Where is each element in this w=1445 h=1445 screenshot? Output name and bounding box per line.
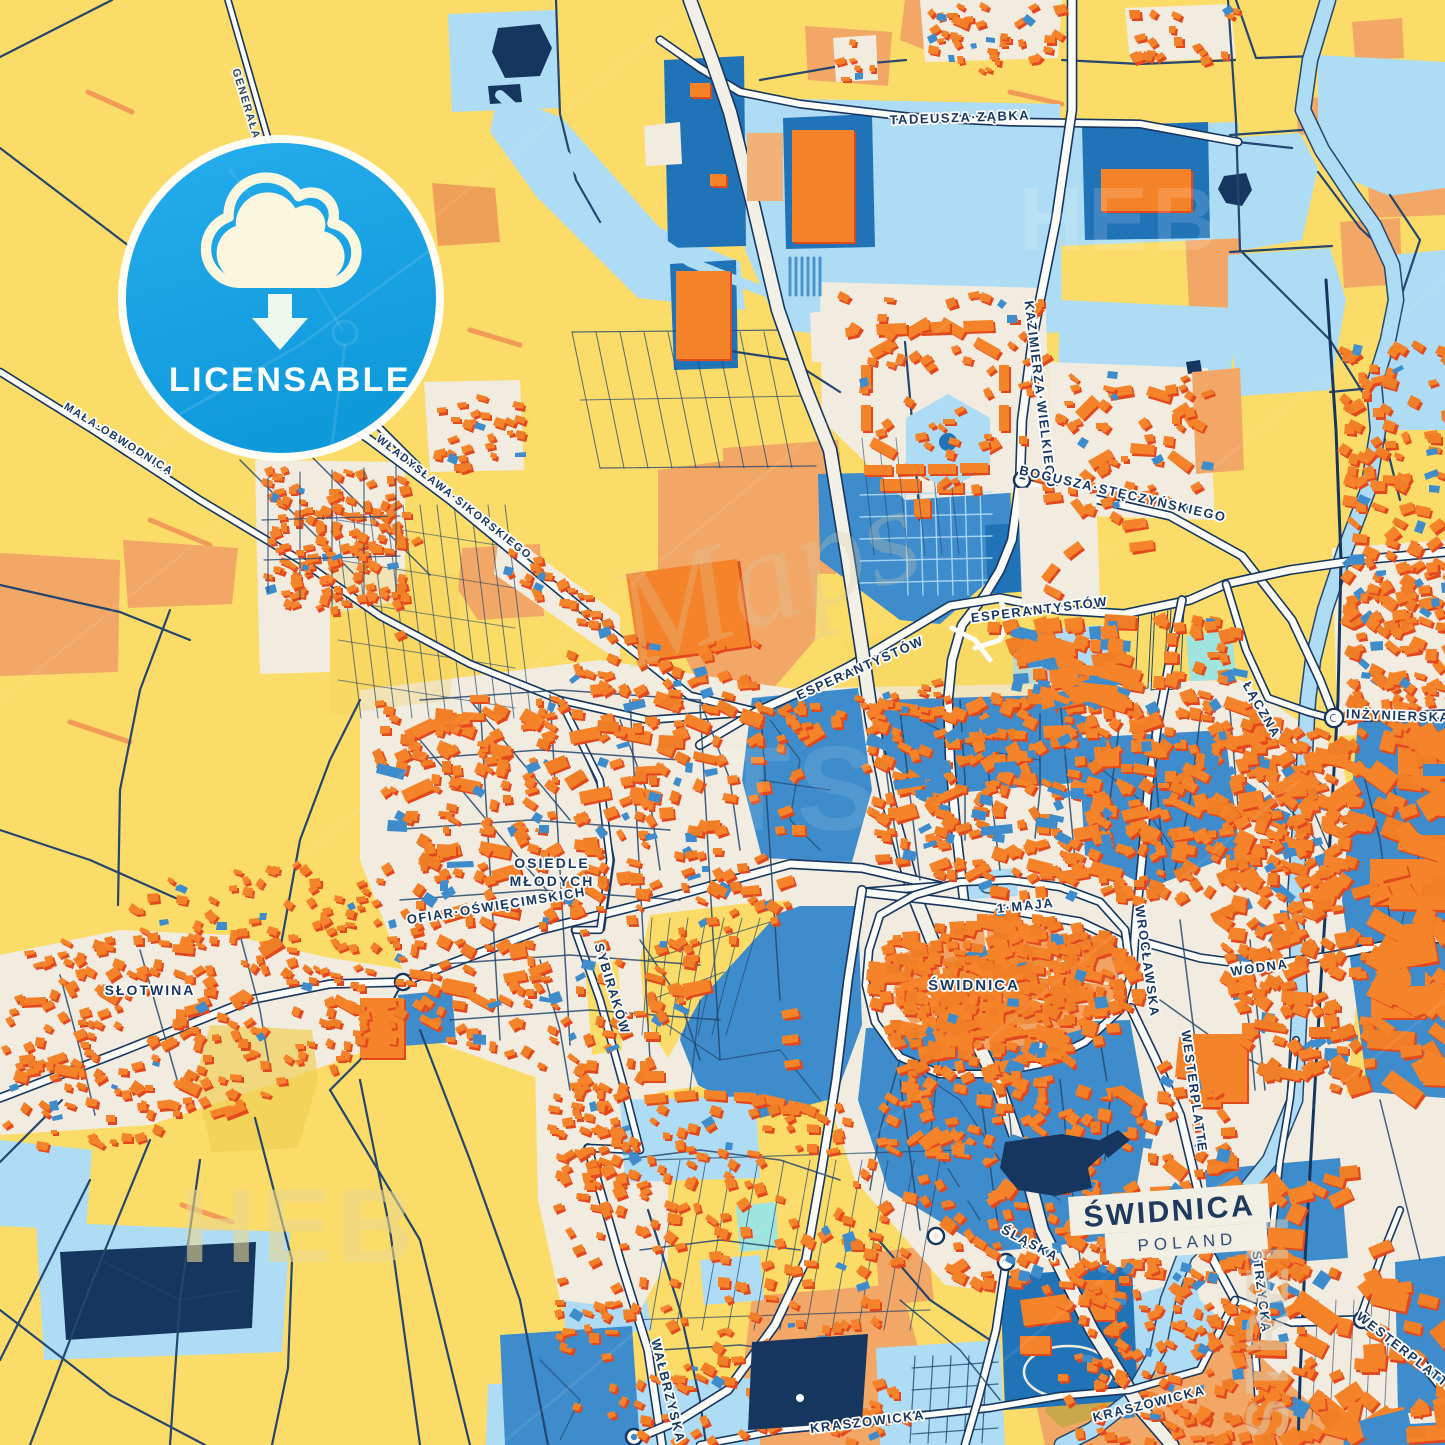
svg-text:MŁODYCH: MŁODYCH	[510, 873, 595, 889]
svg-text:ŚWIDNICA: ŚWIDNICA	[928, 976, 1020, 994]
svg-text:TS: TS	[717, 722, 882, 856]
svg-text:LICENSABLE: LICENSABLE	[169, 361, 411, 399]
svg-text:OSIEDLE: OSIEDLE	[514, 855, 589, 871]
svg-text:HEB: HEB	[180, 1168, 420, 1285]
svg-text:HEB: HEB	[1019, 170, 1221, 270]
svg-text:SŁOTWINA: SŁOTWINA	[105, 982, 196, 998]
